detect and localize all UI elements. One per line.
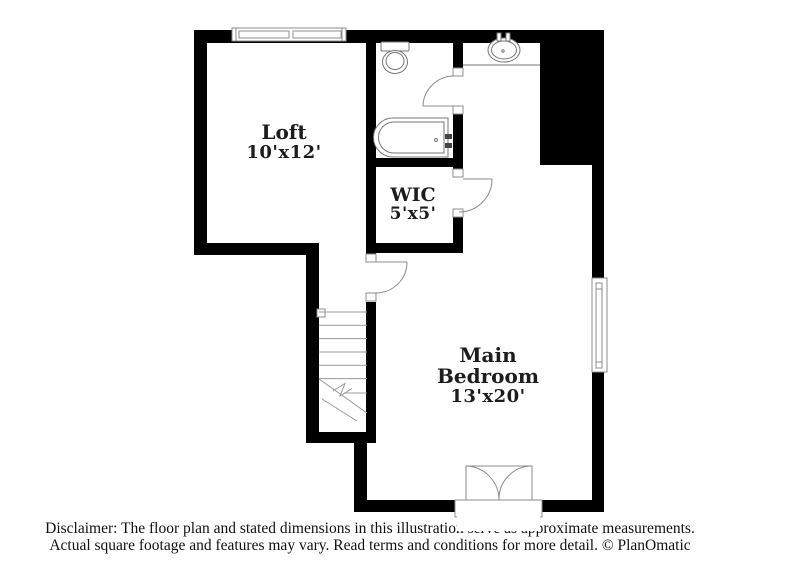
- room-name-main-bedroom-1: Main: [408, 345, 568, 366]
- door-swing-icon-bathroom: [423, 68, 463, 114]
- wall-loft-bottom: [194, 243, 319, 255]
- window-icon-right: [592, 278, 607, 372]
- disclaimer-line-1: Disclaimer: The floor plan and stated di…: [20, 520, 720, 537]
- door-swing-icon-hall: [366, 254, 407, 301]
- room-dims-wic: 5'x5': [353, 205, 473, 223]
- wall-stairs-bedroom: [366, 302, 376, 443]
- room-dims-main-bedroom: 13'x20': [408, 387, 568, 407]
- wall-right-lower: [592, 372, 604, 512]
- wall-bath-bedroom-upper: [453, 43, 463, 68]
- wall-wic-bottom: [366, 243, 463, 253]
- wall-solid-block-top-right: [540, 30, 604, 165]
- wall-bath-wic-divider: [366, 158, 463, 167]
- wall-lower-left: [354, 432, 367, 512]
- floor-plan: Loft 10'x12' WIC 5'x5' Main Bedroom 13'x…: [0, 0, 800, 582]
- wall-bottom: [354, 500, 604, 512]
- room-label-main-bedroom: Main Bedroom 13'x20': [408, 345, 568, 407]
- room-name-wic: WIC: [353, 185, 473, 205]
- disclaimer: Disclaimer: The floor plan and stated di…: [20, 520, 720, 554]
- room-label-loft: Loft 10'x12': [204, 122, 364, 163]
- wall-stairwell-left: [306, 243, 319, 443]
- room-name-loft: Loft: [204, 122, 364, 143]
- wall-right-upper: [592, 165, 604, 278]
- fixtures-layer: [0, 0, 800, 582]
- stairs-icon: [317, 309, 367, 421]
- room-name-main-bedroom-2: Bedroom: [408, 366, 568, 387]
- room-dims-loft: 10'x12': [204, 143, 364, 163]
- disclaimer-line-2: Actual square footage and features may v…: [20, 537, 720, 554]
- room-label-wic: WIC 5'x5': [353, 185, 473, 223]
- toilet-icon: [381, 42, 409, 74]
- bathtub-icon: [374, 118, 453, 157]
